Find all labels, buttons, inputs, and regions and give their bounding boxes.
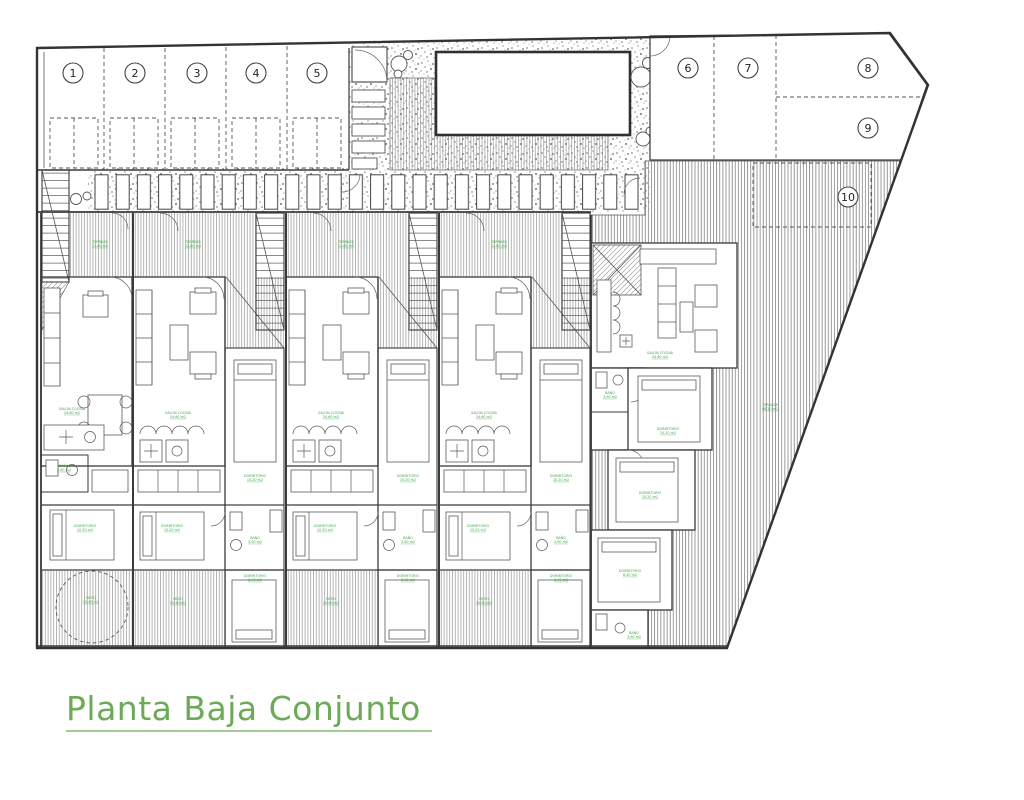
svg-text:10: 10	[841, 191, 855, 204]
unit-patio-hatch	[41, 571, 132, 646]
svg-text:6: 6	[685, 62, 692, 75]
svg-text:5: 5	[314, 67, 321, 80]
plot-number-8: 8	[858, 58, 878, 78]
room-label-bano: BAÑO3.90 m2	[627, 630, 641, 639]
stepping-stones-walkway	[92, 174, 644, 210]
parking-area-east	[650, 34, 927, 161]
site-plan-drawing: TERRAZA12.80 m2 SALON-COCINA24.60 m2 DOR…	[0, 0, 1024, 800]
garden-gate	[352, 47, 387, 82]
plot-number-1: 1	[63, 63, 83, 83]
swimming-pool	[436, 52, 630, 135]
room-label-dormitorio: DORMITORIO10.20 m2	[639, 491, 662, 499]
svg-text:4: 4	[253, 67, 260, 80]
room-label-terraza10: TERRAZA98.20 m2	[761, 403, 778, 411]
svg-text:8: 8	[865, 62, 872, 75]
room-label-bano: BAÑO3.90 m2	[603, 390, 617, 399]
plot-number-9: 9	[858, 118, 878, 138]
plot-number-4: 4	[246, 63, 266, 83]
room-label-dormitorio: DORMITORIO10.20 m2	[657, 427, 680, 435]
plot-number-5: 5	[307, 63, 327, 83]
plot-number-2: 2	[125, 63, 145, 83]
svg-text:7: 7	[745, 62, 752, 75]
floor-plan-sheet: TERRAZA12.80 m2 SALON-COCINA24.60 m2 DOR…	[0, 0, 1024, 800]
svg-text:1: 1	[70, 67, 77, 80]
svg-text:3: 3	[194, 67, 201, 80]
room-label-bano: BAÑO3.90 m2	[57, 463, 71, 472]
plot-number-6: 6	[678, 58, 698, 78]
bedroom-furniture	[50, 510, 114, 560]
plot-number-10: 10	[838, 187, 858, 207]
plot-number-3: 3	[187, 63, 207, 83]
room-label-dormitorio: DORMITORIO10.20 m2	[74, 524, 97, 532]
plan-title: Planta Baja Conjunto	[66, 689, 421, 728]
room-label-terraza: TERRAZA12.80 m2	[91, 240, 108, 248]
svg-text:2: 2	[132, 67, 139, 80]
plot-number-7: 7	[738, 58, 758, 78]
sheet-title-block: Planta Baja Conjunto	[66, 689, 432, 731]
svg-text:9: 9	[865, 122, 872, 135]
